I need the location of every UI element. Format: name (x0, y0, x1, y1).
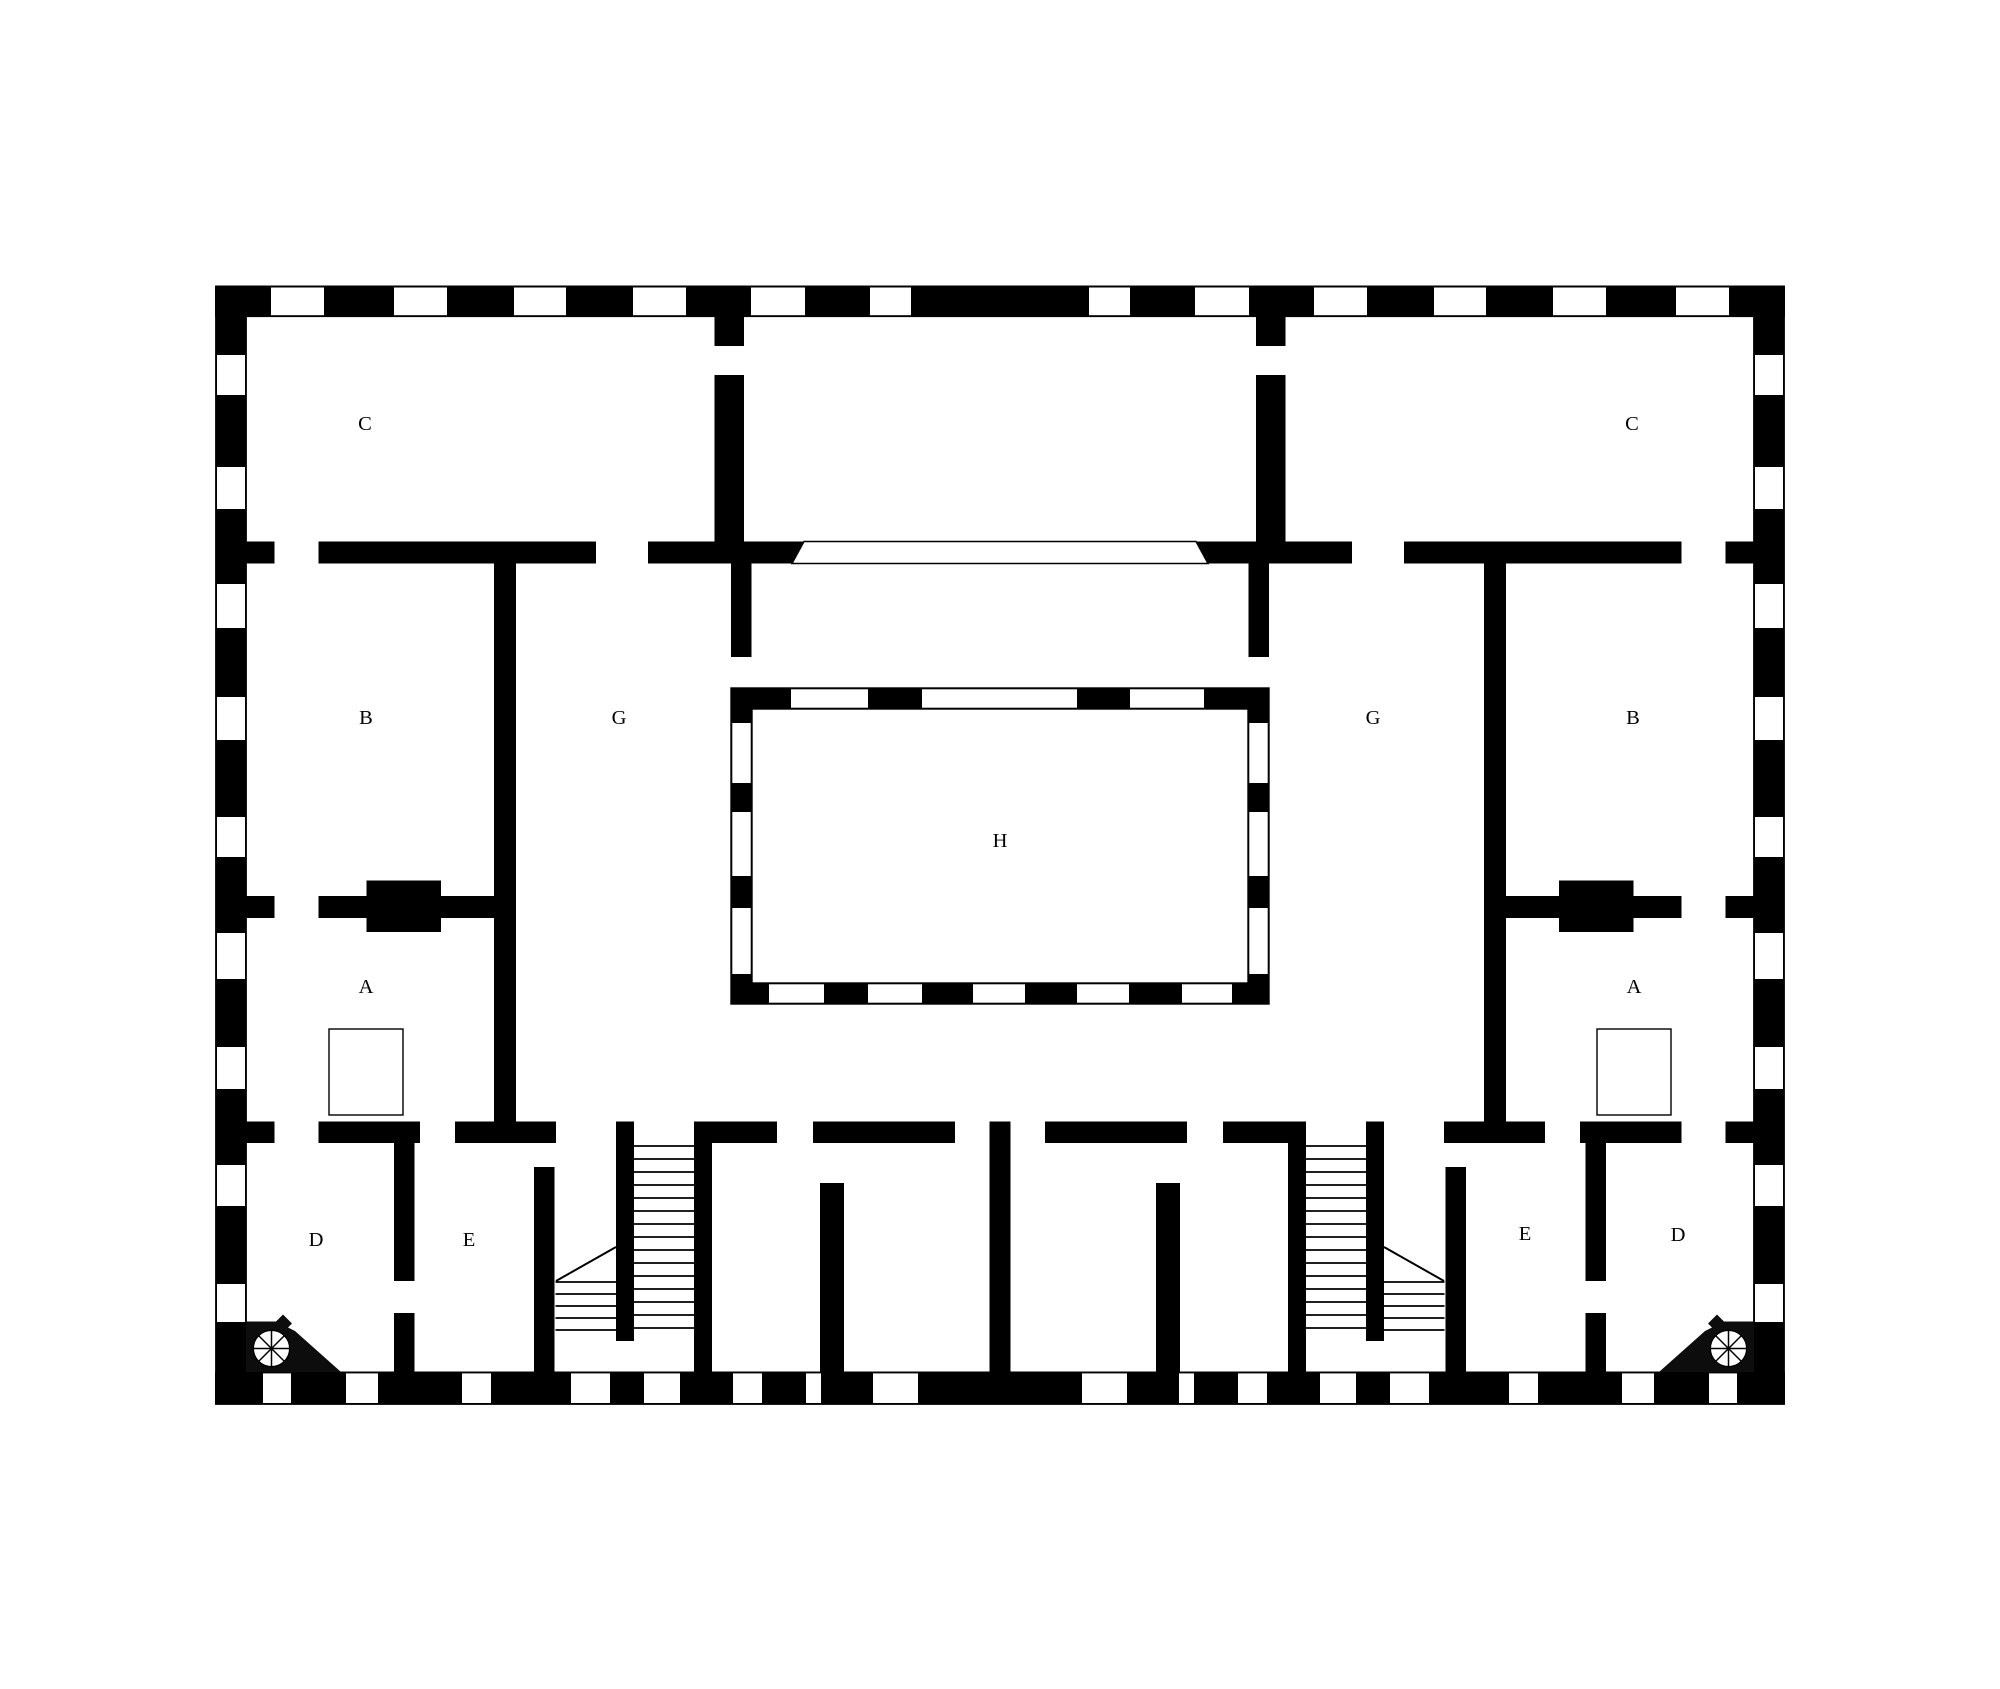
svg-text:H: H (993, 830, 1008, 852)
svg-text:E: E (1519, 1223, 1532, 1245)
svg-text:C: C (1625, 413, 1639, 435)
svg-text:G: G (612, 707, 627, 729)
svg-text:C: C (358, 413, 372, 435)
svg-text:E: E (463, 1229, 476, 1251)
svg-text:A: A (359, 976, 374, 998)
svg-text:A: A (1627, 976, 1642, 998)
svg-text:B: B (359, 707, 373, 729)
svg-text:D: D (1671, 1224, 1686, 1246)
svg-text:B: B (1626, 707, 1640, 729)
svg-text:G: G (1366, 707, 1381, 729)
svg-text:D: D (309, 1229, 324, 1251)
